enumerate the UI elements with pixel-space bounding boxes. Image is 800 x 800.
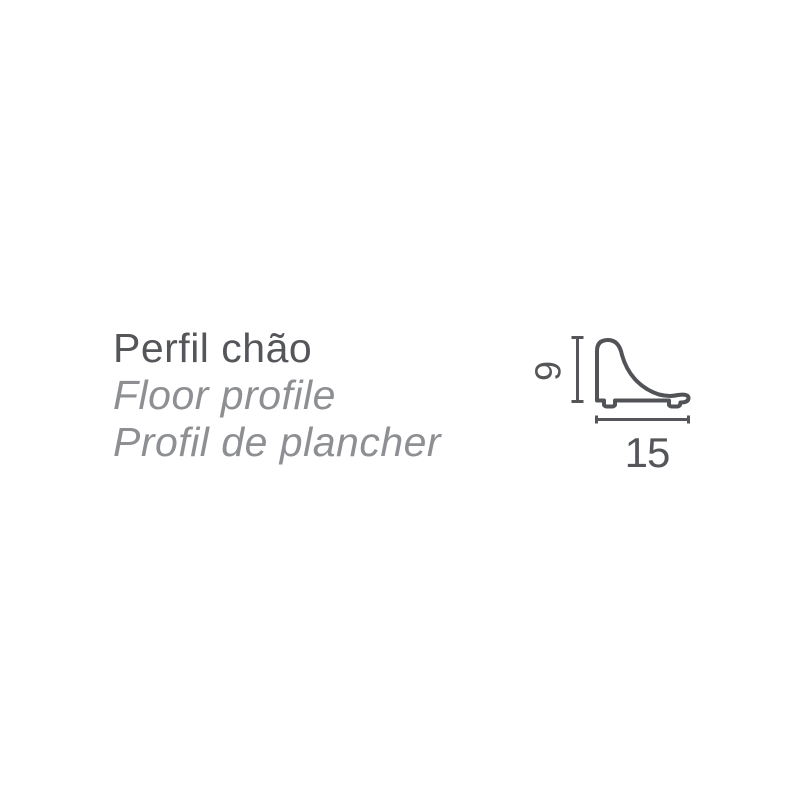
product-title-block: Perfil chão Floor profile Profil de plan…: [113, 325, 441, 466]
catalog-page: Perfil chão Floor profile Profil de plan…: [0, 0, 800, 800]
height-dimension-value: 9: [528, 361, 569, 381]
floor-profile-technical-drawing: 9 15: [525, 325, 705, 475]
product-title-portuguese: Perfil chão: [113, 325, 441, 372]
profile-cross-section-outline: [597, 340, 689, 407]
product-title-french: Profil de plancher: [113, 419, 441, 466]
product-title-english: Floor profile: [113, 372, 441, 419]
width-dimension-line: 15: [597, 416, 689, 476]
width-dimension-value: 15: [625, 429, 670, 475]
height-dimension-line: 9: [528, 338, 584, 402]
